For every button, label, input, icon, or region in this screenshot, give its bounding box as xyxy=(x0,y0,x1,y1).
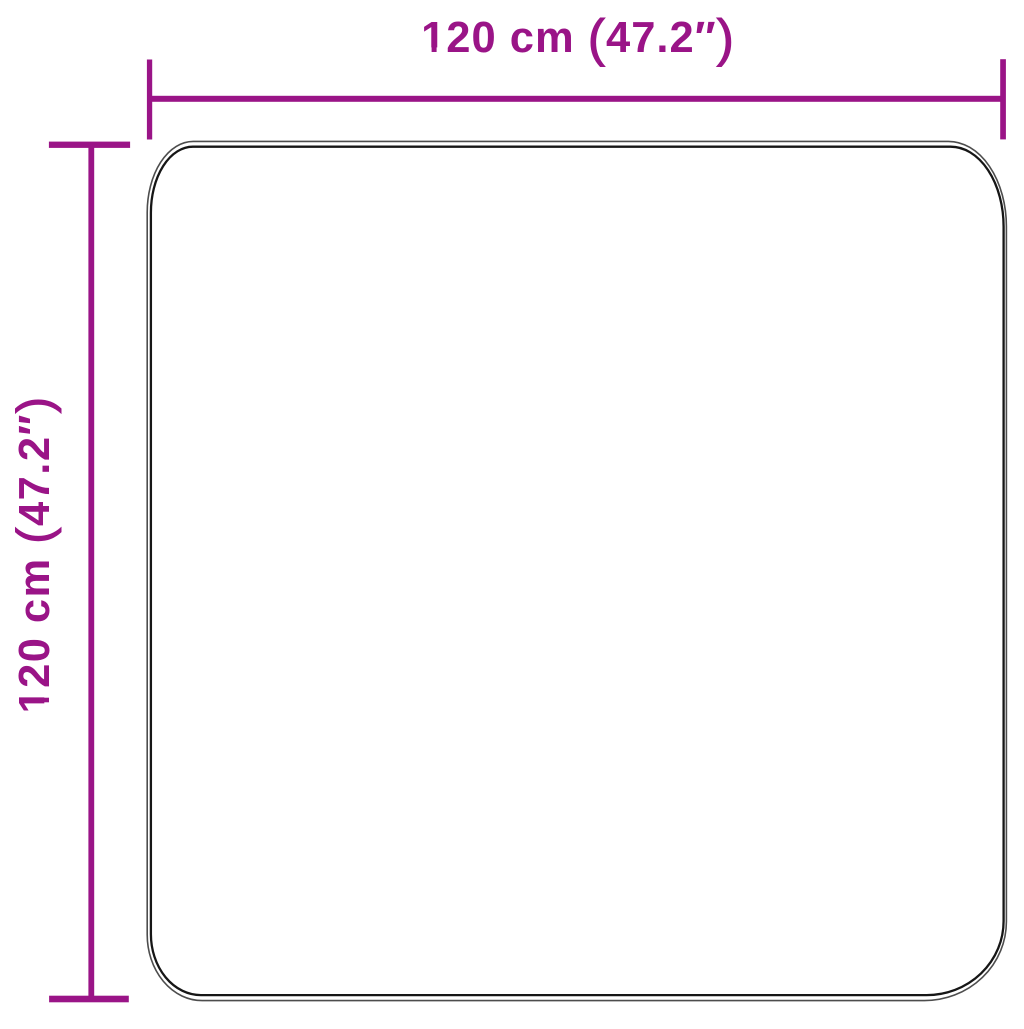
svg-text:120 cm (47.2″): 120 cm (47.2″) xyxy=(8,395,62,713)
svg-text:120 cm (47.2″): 120 cm (47.2″) xyxy=(421,10,735,68)
